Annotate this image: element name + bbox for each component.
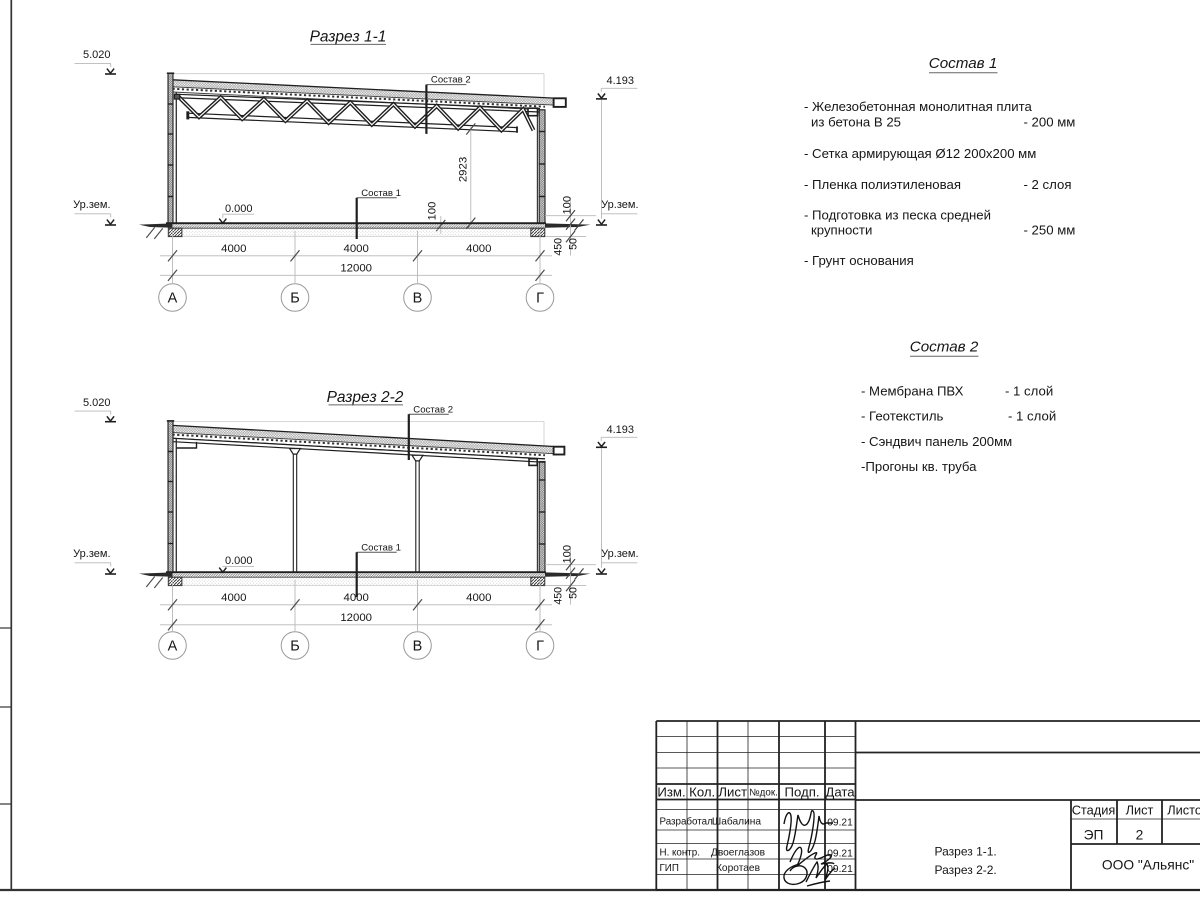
svg-text:Состав 2: Состав 2 xyxy=(431,75,471,86)
svg-text:4.193: 4.193 xyxy=(606,424,634,436)
svg-text:0.000: 0.000 xyxy=(225,555,253,567)
svg-text:100: 100 xyxy=(562,545,574,564)
svg-text:Н. контр.: Н. контр. xyxy=(660,848,700,859)
svg-text:ООО "Альянс": ООО "Альянс" xyxy=(1102,858,1194,873)
svg-text:А: А xyxy=(168,291,178,307)
svg-text:09.21: 09.21 xyxy=(827,864,853,875)
svg-text:Ур.зем.: Ур.зем. xyxy=(601,548,638,560)
svg-text:- Мембрана ПВХ: - Мембрана ПВХ xyxy=(861,384,964,399)
svg-text:Разрез 1-1: Разрез 1-1 xyxy=(310,29,387,46)
svg-text:4.193: 4.193 xyxy=(606,75,634,87)
svg-text:Разрез 2-2: Разрез 2-2 xyxy=(327,389,404,406)
svg-text:Лист: Лист xyxy=(718,785,747,800)
svg-text:Лист: Лист xyxy=(1126,803,1154,818)
svg-text:- Грунт основания: - Грунт основания xyxy=(804,253,914,268)
svg-text:2: 2 xyxy=(1136,828,1144,843)
svg-text:450: 450 xyxy=(553,238,565,256)
svg-text:100: 100 xyxy=(427,202,439,221)
svg-text:- Геотекстиль: - Геотекстиль xyxy=(861,409,944,424)
svg-text:Шабалина: Шабалина xyxy=(712,816,762,828)
svg-text:5.020: 5.020 xyxy=(83,49,111,61)
svg-text:- 250 мм: - 250 мм xyxy=(1024,223,1076,238)
svg-text:№док.: №док. xyxy=(749,788,778,799)
svg-text:- 200 мм: - 200 мм xyxy=(1024,115,1076,130)
svg-text:Разрез 2-2.: Разрез 2-2. xyxy=(935,863,997,877)
svg-text:ЭП: ЭП xyxy=(1084,828,1104,843)
svg-text:- Сэндвич панель 200мм: - Сэндвич панель 200мм xyxy=(861,434,1012,449)
svg-text:4000: 4000 xyxy=(344,592,369,604)
svg-text:- Подготовка из песка средней: - Подготовка из песка средней xyxy=(804,208,991,223)
svg-text:Г: Г xyxy=(536,639,544,655)
svg-text:из бетона В 25: из бетона В 25 xyxy=(811,115,901,130)
svg-text:Ур.зем.: Ур.зем. xyxy=(73,199,110,211)
svg-text:Разрез 1-1.: Разрез 1-1. xyxy=(935,845,997,859)
svg-text:Кол.: Кол. xyxy=(689,785,715,800)
svg-text:Ур.зем.: Ур.зем. xyxy=(73,548,110,560)
svg-text:-Прогоны кв. труба: -Прогоны кв. труба xyxy=(861,459,977,474)
svg-text:450: 450 xyxy=(553,587,565,605)
svg-text:Двоеглазов: Двоеглазов xyxy=(711,848,765,859)
svg-text:Коротаев: Коротаев xyxy=(716,863,760,874)
svg-text:Ур.зем.: Ур.зем. xyxy=(601,199,638,211)
svg-text:Состав 1: Состав 1 xyxy=(929,55,998,72)
svg-text:- 1 слой: - 1 слой xyxy=(1005,384,1053,399)
svg-text:- Пленка полиэтиленовая: - Пленка полиэтиленовая xyxy=(804,177,961,192)
svg-text:ГИП: ГИП xyxy=(660,863,679,874)
svg-text:12000: 12000 xyxy=(340,612,372,624)
svg-text:50: 50 xyxy=(567,238,579,250)
svg-text:4000: 4000 xyxy=(344,243,369,255)
svg-text:4000: 4000 xyxy=(466,243,491,255)
svg-text:В: В xyxy=(413,639,423,655)
svg-text:- Железобетонная монолитная п: - Железобетонная монолитная плита xyxy=(804,99,1033,114)
svg-text:0.000: 0.000 xyxy=(225,203,253,215)
svg-text:12000: 12000 xyxy=(340,263,372,275)
svg-text:4000: 4000 xyxy=(466,592,491,604)
svg-text:Стадия: Стадия xyxy=(1072,803,1116,818)
svg-text:- 1 слой: - 1 слой xyxy=(1008,409,1056,424)
svg-text:50: 50 xyxy=(567,587,579,599)
svg-text:Листов: Листов xyxy=(1167,803,1200,818)
svg-text:4000: 4000 xyxy=(221,243,246,255)
svg-text:5.020: 5.020 xyxy=(83,397,111,409)
svg-text:Изм.: Изм. xyxy=(657,785,685,800)
svg-text:- Сетка армирующая Ø12 200х200: - Сетка армирующая Ø12 200х200 мм xyxy=(804,146,1036,161)
svg-text:2923: 2923 xyxy=(458,157,470,182)
svg-text:Состав 2: Состав 2 xyxy=(910,339,979,356)
svg-text:100: 100 xyxy=(562,196,574,215)
svg-text:Б: Б xyxy=(290,639,300,655)
svg-text:Б: Б xyxy=(290,291,300,307)
svg-text:Подп.: Подп. xyxy=(784,785,819,800)
svg-text:Разработал: Разработал xyxy=(660,817,714,828)
svg-text:4000: 4000 xyxy=(221,592,246,604)
svg-text:Г: Г xyxy=(536,291,544,307)
svg-text:В: В xyxy=(413,291,423,307)
svg-text:А: А xyxy=(168,639,178,655)
svg-text:- 2 слоя: - 2 слоя xyxy=(1024,177,1072,192)
svg-text:крупности: крупности xyxy=(811,223,872,238)
svg-text:Дата: Дата xyxy=(825,785,855,800)
